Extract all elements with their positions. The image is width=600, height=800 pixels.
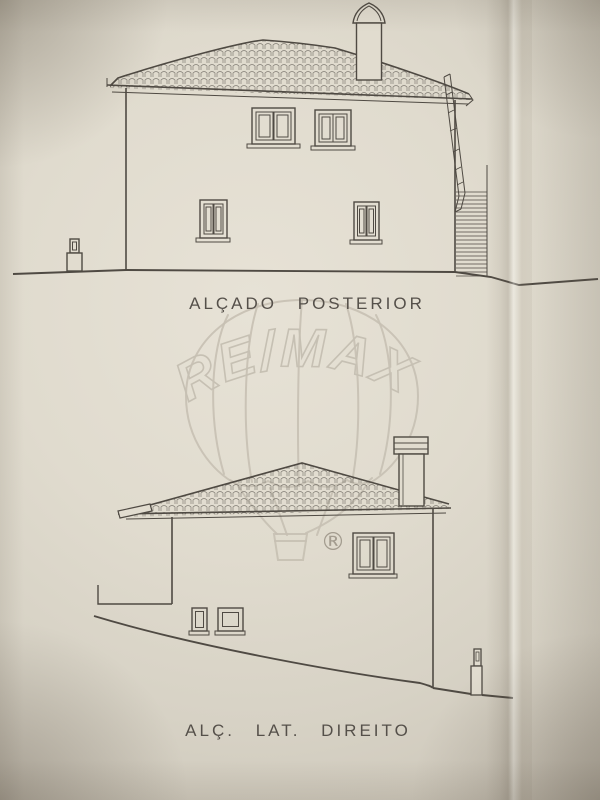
side-window xyxy=(349,533,397,578)
roof-chimney xyxy=(353,3,385,80)
upper-window-right xyxy=(311,110,355,150)
roof-chimney xyxy=(394,437,428,506)
terrace-wall xyxy=(98,585,172,604)
right-side-elevation-drawing xyxy=(94,437,513,698)
walls xyxy=(98,509,433,688)
ground-chimney-right xyxy=(471,649,482,695)
elevation-drawings xyxy=(0,0,600,800)
lower-window-left xyxy=(196,200,230,242)
sloped-ground-line xyxy=(94,616,513,698)
upper-window-left xyxy=(247,108,300,148)
lower-window-right xyxy=(350,202,382,244)
stair-hatch xyxy=(456,192,487,276)
basement-opening-left xyxy=(189,608,209,635)
right-side-elevation-title: ALÇ. LAT. DIREITO xyxy=(0,721,598,741)
ground-line xyxy=(13,270,598,285)
rear-elevation-title: ALÇADO POSTERIOR xyxy=(7,294,600,314)
basement-opening-right xyxy=(215,608,245,635)
blueprint-photo-page: RE/MAX ® xyxy=(0,0,600,800)
ground-chimney-left xyxy=(67,239,82,271)
rear-elevation-drawing xyxy=(13,3,598,285)
external-stair xyxy=(444,74,487,277)
